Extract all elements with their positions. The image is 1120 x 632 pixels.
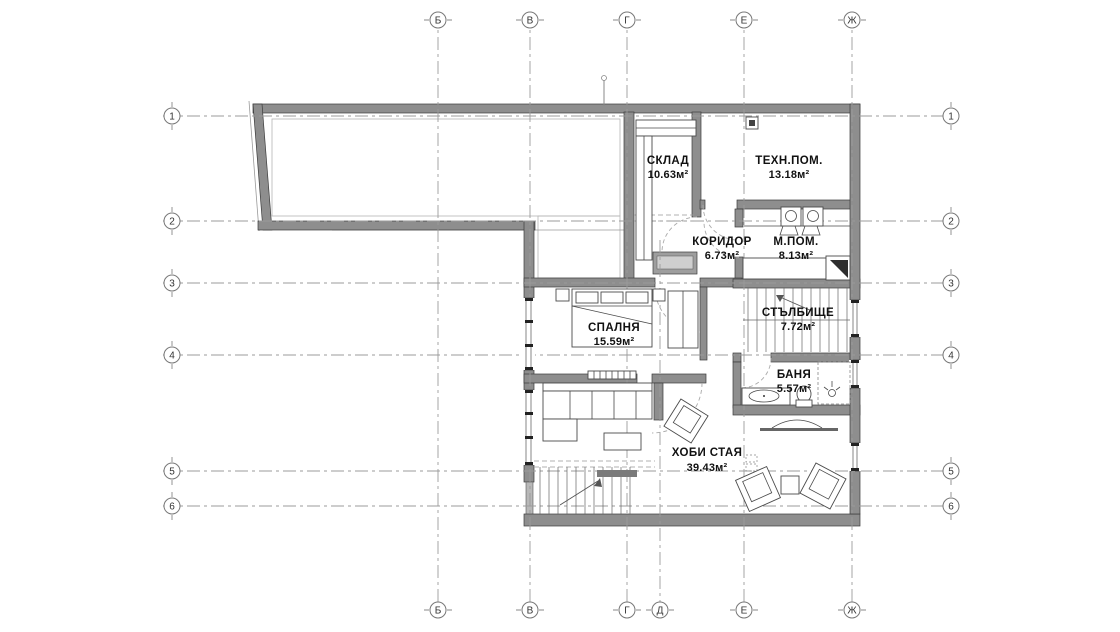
roof-antenna <box>602 76 607 107</box>
floor-drain-marks <box>746 455 757 471</box>
svg-text:Б: Б <box>435 606 442 617</box>
floor-plan-canvas: Б В Г Е Ж Б В Г Д Е Ж 1 2 3 4 5 6 1 2 3 … <box>0 0 1120 632</box>
axis-marker-left-3: 3 <box>164 275 180 291</box>
flue-box <box>746 117 758 129</box>
room-label-corridor: КОРИДОР <box>692 236 752 248</box>
svg-text:Г: Г <box>624 16 630 27</box>
coffee-table <box>604 433 641 450</box>
svg-text:4: 4 <box>169 351 175 362</box>
room-label-bathroom: БАНЯ <box>777 369 811 381</box>
room-label-staircase: СТЪЛБИЩЕ <box>762 307 834 319</box>
axis-marker-right-6: 6 <box>943 498 959 514</box>
axis-marker-bottom-b: Б <box>430 602 446 618</box>
armchair-1 <box>664 399 708 443</box>
stair-handrail <box>597 470 637 477</box>
laundry-appliances <box>744 207 850 235</box>
axis-marker-top-b: Б <box>430 12 446 28</box>
tv-console <box>760 420 838 431</box>
svg-text:4: 4 <box>948 351 954 362</box>
svg-text:5: 5 <box>948 467 954 478</box>
axis-marker-left-5: 5 <box>164 463 180 479</box>
lower-stair-arrow <box>560 478 602 505</box>
wardrobe <box>668 291 698 348</box>
svg-text:Б: Б <box>435 16 442 27</box>
room-area-tech-room: 13.18м² <box>769 169 810 181</box>
room-label-bedroom: СПАЛНЯ <box>588 322 640 334</box>
svg-text:5: 5 <box>169 467 175 478</box>
svg-text:Д: Д <box>657 606 664 617</box>
room-area-bathroom: 5.57м² <box>777 383 812 395</box>
nightstand-left <box>556 289 569 301</box>
svg-text:2: 2 <box>948 217 954 228</box>
bedroom-radiator <box>588 371 636 379</box>
svg-text:Ж: Ж <box>847 16 857 27</box>
axis-marker-right-2: 2 <box>943 213 959 229</box>
sofa <box>543 383 652 441</box>
room-area-storage: 10.63м² <box>648 169 689 181</box>
axis-marker-right-3: 3 <box>943 275 959 291</box>
axis-marker-left-4: 4 <box>164 347 180 363</box>
axis-marker-top-zh: Ж <box>844 12 860 28</box>
room-area-utility-room: 8.13м² <box>779 250 814 262</box>
svg-text:В: В <box>527 16 534 27</box>
axis-marker-bottom-g: Г <box>619 602 635 618</box>
axis-marker-top-e: Е <box>736 12 752 28</box>
bedroom-window <box>523 298 535 370</box>
nightstand-right <box>653 289 665 301</box>
room-area-bedroom: 15.59м² <box>594 336 635 348</box>
svg-text:3: 3 <box>948 279 954 290</box>
hobby-window-left <box>523 390 535 465</box>
axis-marker-right-1: 1 <box>943 108 959 124</box>
stair-window <box>849 300 861 337</box>
svg-text:Г: Г <box>624 606 630 617</box>
armchair-2 <box>736 467 781 512</box>
axis-marker-top-g: Г <box>619 12 635 28</box>
axis-marker-bottom-e: Е <box>736 602 752 618</box>
axis-marker-left-2: 2 <box>164 213 180 229</box>
axis-marker-bottom-zh: Ж <box>844 602 860 618</box>
room-label-storage: СКЛАД <box>647 155 689 167</box>
svg-text:В: В <box>527 606 534 617</box>
storage-shelving <box>636 120 696 260</box>
svg-text:1: 1 <box>948 112 954 123</box>
armchair-3 <box>800 463 846 509</box>
svg-text:6: 6 <box>169 502 175 513</box>
bath-window <box>849 360 861 388</box>
terrace-hatch-bottom <box>618 526 856 588</box>
room-label-tech-room: ТЕХН.ПОМ. <box>755 155 822 167</box>
shower <box>818 362 850 404</box>
room-label-hobby-room: ХОБИ СТАЯ <box>672 447 743 459</box>
room-area-corridor: 6.73м² <box>705 250 740 262</box>
axis-marker-left-6: 6 <box>164 498 180 514</box>
floor-plan-drawing: Б В Г Е Ж Б В Г Д Е Ж 1 2 3 4 5 6 1 2 3 … <box>0 0 1120 632</box>
axis-marker-left-1: 1 <box>164 108 180 124</box>
svg-text:Ж: Ж <box>847 606 857 617</box>
terrace-hatch-top-left <box>272 119 620 278</box>
hobby-window-right <box>849 443 861 471</box>
room-label-utility-room: М.ПОМ. <box>773 236 818 248</box>
room-area-staircase: 7.72м² <box>781 321 816 333</box>
main-staircase <box>743 288 850 352</box>
svg-text:1: 1 <box>169 112 175 123</box>
svg-text:3: 3 <box>169 279 175 290</box>
axis-marker-right-4: 4 <box>943 347 959 363</box>
axis-marker-bottom-v: В <box>522 602 538 618</box>
axis-marker-bottom-d: Д <box>652 602 668 618</box>
svg-text:Е: Е <box>741 606 748 617</box>
room-area-hobby-room: 39.43м² <box>687 462 728 474</box>
axis-marker-right-5: 5 <box>943 463 959 479</box>
svg-text:Е: Е <box>741 16 748 27</box>
svg-text:6: 6 <box>948 502 954 513</box>
svg-text:2: 2 <box>169 217 175 228</box>
axis-marker-top-v: В <box>522 12 538 28</box>
side-table <box>781 476 799 494</box>
